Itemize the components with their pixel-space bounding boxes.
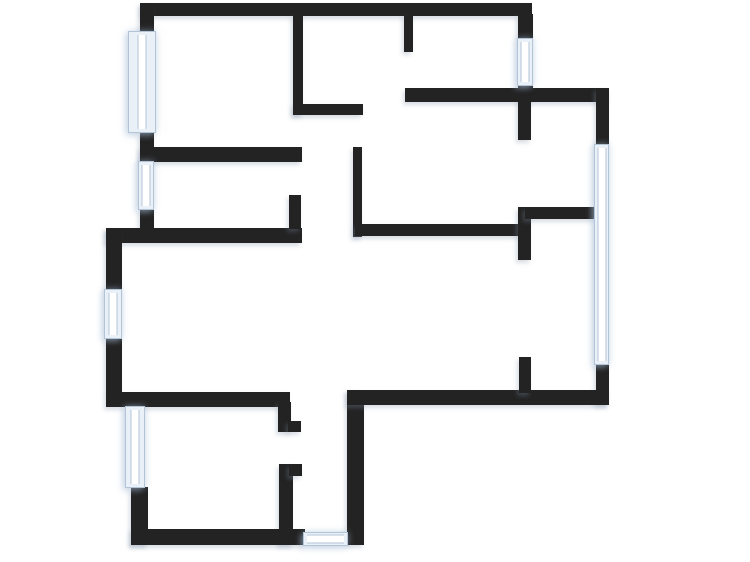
interior-step-stub-b <box>289 464 302 476</box>
exterior-topright-wall-upper <box>518 14 533 39</box>
interior-wall-horizontal-3 <box>525 207 597 219</box>
window-right <box>594 144 609 365</box>
exterior-bottom-wall-right <box>347 390 609 405</box>
exterior-top-wall <box>142 3 532 16</box>
window-bottomleft-room <box>125 406 145 488</box>
window-upper-left <box>128 31 156 133</box>
exterior-topright-horizontal <box>405 88 609 102</box>
exterior-left-wall-lower-a <box>106 228 122 291</box>
window-bottom <box>303 532 348 546</box>
interior-wall-topleft-room-bottom <box>140 147 302 162</box>
exterior-right-wall-upper <box>596 88 609 145</box>
interior-wall-horizontal-b <box>293 104 363 115</box>
interior-wall-vertical-top-mid <box>404 14 413 52</box>
window-left-middle <box>138 161 154 210</box>
window-top-right <box>517 38 533 86</box>
interior-wall-horizontal-1 <box>106 228 302 243</box>
interior-stub-below-topright <box>518 102 531 140</box>
floor-plan <box>0 0 750 562</box>
interior-wall-vertical-stub-1 <box>289 195 301 229</box>
window-left-lower <box>104 289 122 339</box>
exterior-left-wall-lower-b <box>106 337 122 393</box>
interior-wall-vertical-2 <box>347 390 364 545</box>
exterior-left-wall-upper-a <box>140 3 154 34</box>
interior-wall-bottomleft-room-top <box>106 392 290 407</box>
interior-step-stub-a <box>288 421 301 432</box>
interior-wall-vertical-a <box>293 14 303 115</box>
interior-wall-horizontal-2 <box>355 224 525 236</box>
interior-stub-bottom-right <box>519 357 531 393</box>
exterior-bottom-wall-left <box>131 529 305 545</box>
